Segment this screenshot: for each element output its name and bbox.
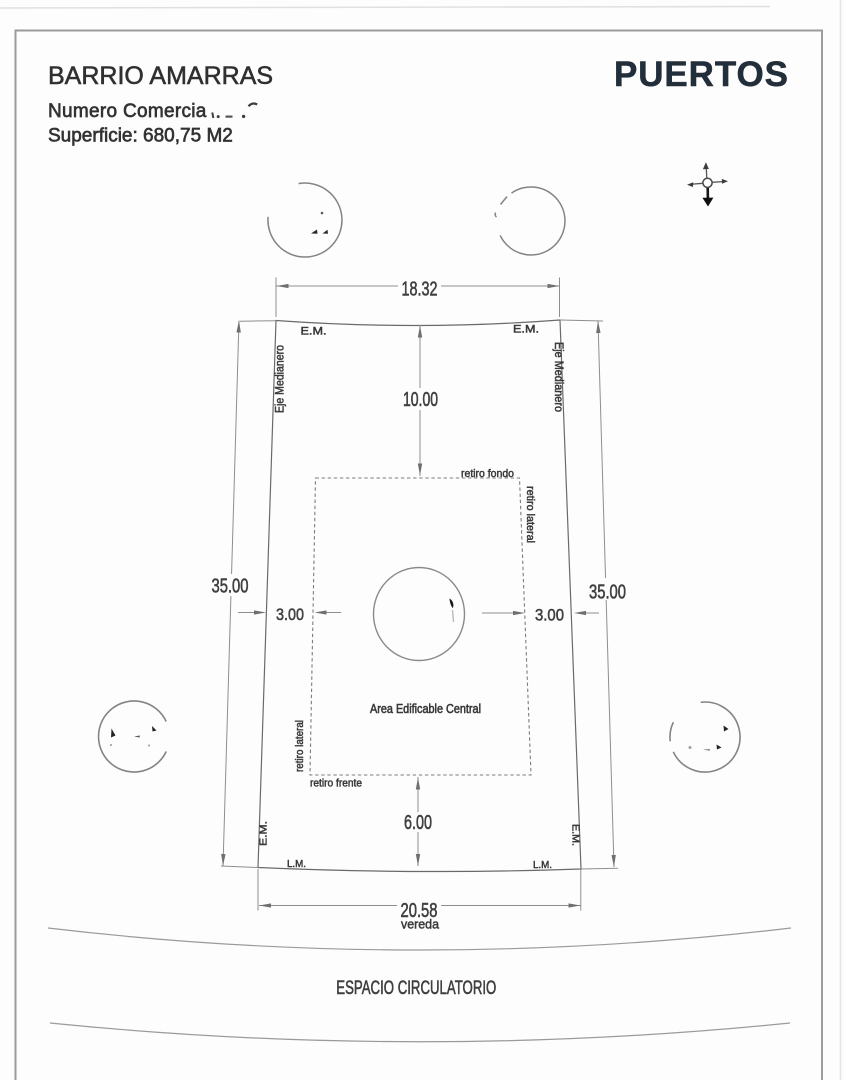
svg-text:vereda: vereda [401, 917, 440, 932]
svg-text:retiro fondo: retiro fondo [461, 468, 514, 480]
svg-text:Eje Medianero: Eje Medianero [552, 342, 564, 412]
svg-text:18.32: 18.32 [402, 279, 438, 301]
svg-text:E.M.: E.M. [259, 821, 270, 846]
svg-text:Superficie: 680,75 M2: Superficie: 680,75 M2 [48, 126, 233, 147]
svg-text:E.M.: E.M. [301, 326, 327, 338]
svg-text:E.M.: E.M. [513, 324, 539, 336]
svg-text:ESPACIO CIRCULATORIO: ESPACIO CIRCULATORIO [336, 978, 496, 999]
svg-text:3.00: 3.00 [276, 605, 304, 624]
svg-text:Numero Comercia: Numero Comercia [48, 101, 207, 122]
svg-text:6.00: 6.00 [404, 812, 432, 834]
svg-text:10.00: 10.00 [403, 389, 438, 411]
svg-text:retiro lateral: retiro lateral [294, 720, 306, 772]
svg-text:L.M.: L.M. [287, 858, 306, 870]
svg-text:retiro lateral: retiro lateral [524, 486, 536, 543]
svg-text:E.M.: E.M. [570, 824, 581, 846]
svg-text:retiro frente: retiro frente [310, 778, 362, 790]
svg-text:BARRIO AMARRAS: BARRIO AMARRAS [48, 62, 273, 90]
svg-text:35.00: 35.00 [212, 576, 249, 598]
svg-text:Area Edificable Central: Area Edificable Central [370, 701, 481, 716]
svg-text:L.M.: L.M. [533, 859, 552, 871]
svg-text:3.00: 3.00 [535, 606, 564, 625]
svg-text:PUERTOS: PUERTOS [614, 55, 789, 94]
svg-text:35.00: 35.00 [589, 582, 626, 604]
svg-text:Eje Medianero: Eje Medianero [275, 345, 287, 413]
